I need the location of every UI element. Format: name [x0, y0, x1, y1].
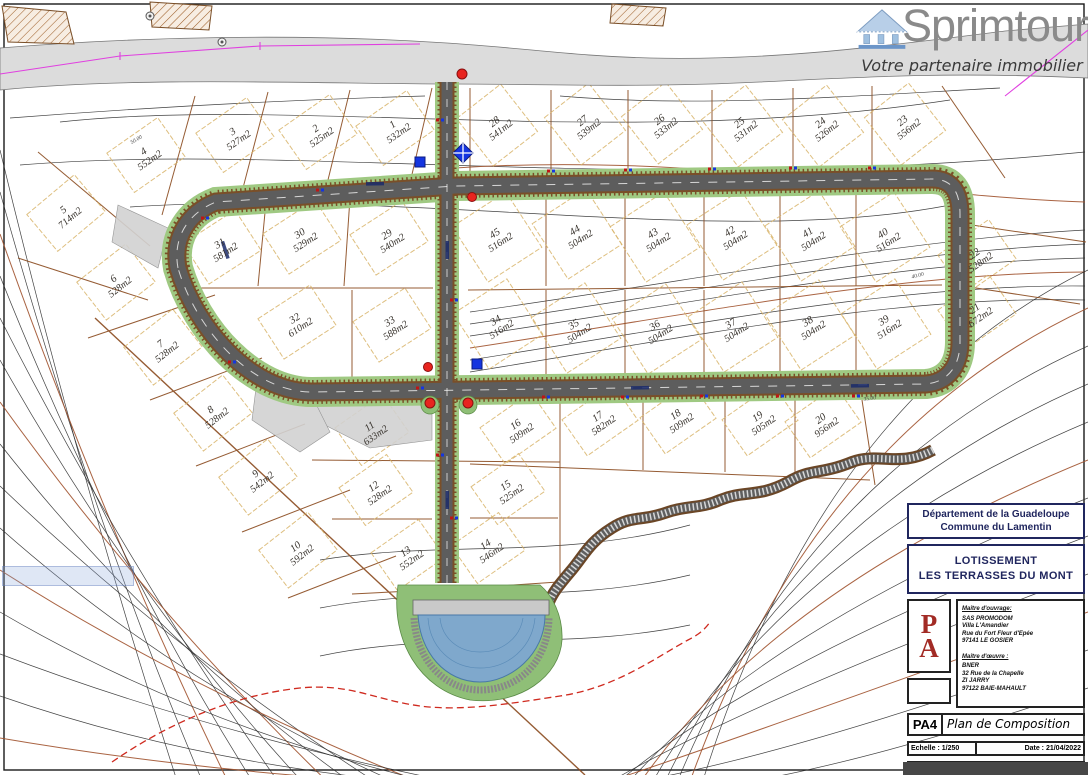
- lot-label: 44504m2: [561, 219, 596, 252]
- street-name-strip: [366, 182, 384, 186]
- empty-stamp-box: [907, 678, 951, 704]
- sprimtour-logo: Sprimtour Votre partenaire immobilier: [856, 0, 1088, 78]
- lot-label: 18509m2: [662, 403, 697, 436]
- contour-line: [320, 525, 690, 560]
- contour-line: [560, 88, 1000, 101]
- designer-address: BNER32 Rue de la ChapelleZI JARRY97122 B…: [962, 663, 1079, 693]
- contour-line: [0, 486, 388, 775]
- lot-label: 3527m2: [219, 120, 254, 153]
- elevation-label: 35.00: [862, 395, 876, 403]
- lot-label: 41504m2: [794, 221, 829, 254]
- lot-label: 6528m2: [100, 267, 135, 301]
- lot-label: 12528m2: [360, 475, 395, 508]
- hydrant-icon: [457, 69, 467, 79]
- owner-label: Maître d'ouvrage:: [962, 606, 1079, 614]
- date-label: Date : 21/04/2022: [977, 743, 1083, 754]
- house-icon: [856, 0, 908, 60]
- address-line: SAS PROMODOM: [962, 616, 1079, 624]
- transformer-icon: [415, 157, 425, 167]
- lot-label: 14546m2: [472, 533, 507, 566]
- lot-label: 23556m2: [889, 109, 924, 143]
- project-box: LOTISSEMENT LES TERRASSES DU MONT: [907, 544, 1085, 594]
- address-line: Rue du Fort Fleur d'Epée: [962, 631, 1079, 639]
- lot-label: 33588m2: [376, 310, 411, 343]
- lot-label: 45516m2: [481, 222, 516, 255]
- contour-line: [0, 570, 440, 775]
- lot-label: 26533m2: [646, 108, 681, 142]
- lot-label: 31581m2: [206, 232, 241, 265]
- architect-monogram: P A: [907, 599, 951, 673]
- lot-label: 2525m2: [302, 117, 337, 150]
- lot-label: 16509m2: [502, 413, 537, 446]
- lot-envelopes: [27, 82, 1016, 590]
- project-line1: LOTISSEMENT: [910, 555, 1082, 567]
- street-name-strip: [851, 384, 869, 388]
- lot-label: 10592m2: [282, 535, 317, 569]
- elevation-label: 40.00: [911, 271, 925, 281]
- region-line1: Département de la Guadeloupe: [910, 508, 1082, 521]
- owner-address: SAS PROMODOMVilla L'AmandierRue du Fort …: [962, 616, 1079, 646]
- street-name-strip: [631, 386, 649, 390]
- lot-label: 13552m2: [392, 540, 427, 573]
- hydrant-icon: [468, 193, 477, 202]
- street-name-strip: [446, 241, 450, 259]
- lot-label: 38504m2: [794, 310, 829, 343]
- map-attribution-overlay: [2, 566, 134, 586]
- scale-label: Echelle : 1/250: [909, 743, 977, 754]
- drainage-channel: [549, 450, 933, 602]
- lot-label: 40516m2: [869, 222, 904, 255]
- lot-label: 39516m2: [870, 309, 905, 342]
- address-line: 97122 BAIE-MAHAULT: [962, 686, 1079, 694]
- lot-label: 32610m2: [281, 307, 316, 340]
- title-block: Département de la Guadeloupe Commune du …: [905, 503, 1087, 775]
- lot-label: 20956m2: [807, 407, 842, 440]
- lot-label: 8528m2: [197, 398, 232, 432]
- region-box: Département de la Guadeloupe Commune du …: [907, 503, 1085, 539]
- lot-label: 4552m2: [130, 140, 165, 173]
- lot-label: 25531m2: [726, 111, 761, 145]
- lot-label: 19505m2: [744, 405, 779, 438]
- transformer-icon: [472, 359, 482, 369]
- brand-tagline: Votre partenaire immobilier: [856, 56, 1088, 75]
- address-line: 32 Rue de la Chapelle: [962, 671, 1079, 679]
- sheet-code: PA4: [907, 713, 943, 736]
- address-line: BNER: [962, 663, 1079, 671]
- sheet-title: Plan de Composition: [943, 713, 1085, 736]
- lot-label: 42504m2: [716, 220, 751, 253]
- frame-bottom-bar: [903, 762, 1088, 775]
- lot-label: 37504m2: [717, 312, 752, 345]
- contour-line: [0, 318, 284, 775]
- lot-label: 7528m2: [147, 332, 182, 366]
- lot-label: 15525m2: [492, 474, 527, 507]
- lot-label: 43504m2: [639, 222, 674, 255]
- lot-label: 36504m2: [641, 314, 676, 347]
- site-plan-sheet: 1532m22525m23527m24552m25714m26528m27528…: [0, 0, 1088, 775]
- lot-label: 5714m2: [50, 197, 85, 231]
- retention-pond: [397, 585, 562, 701]
- brand-name: Sprimtour: [902, 0, 1088, 52]
- contour-line: [0, 444, 362, 775]
- lot-label: 34516m2: [482, 309, 517, 342]
- address-line: 97141 LE GOSIER: [962, 638, 1079, 646]
- lot-label: 28541m2: [481, 110, 516, 144]
- pond-walkway: [413, 600, 549, 615]
- project-line2: LES TERRASSES DU MONT: [910, 570, 1082, 582]
- street-name-strip: [446, 491, 450, 509]
- lot-label: 27539m2: [569, 109, 604, 143]
- region-line2: Commune du Lamentin: [910, 521, 1082, 534]
- contour-line: [0, 654, 492, 775]
- parties-box: Maître d'ouvrage: SAS PROMODOMVilla L'Am…: [956, 599, 1085, 708]
- designer-label: Maître d'œuvre :: [962, 654, 1079, 662]
- lot-label: 17582m2: [584, 405, 619, 438]
- address-line: ZI JARRY: [962, 678, 1079, 686]
- lot-label: 9542m2: [242, 462, 277, 496]
- hydrant-icon: [463, 398, 473, 408]
- hydrant-icon: [424, 363, 433, 372]
- hydrant-icon: [425, 398, 435, 408]
- contour-line: [0, 402, 336, 775]
- lot-label: 30529m2: [286, 222, 321, 255]
- address-line: Villa L'Amandier: [962, 623, 1079, 631]
- lot-label: 29540m2: [373, 223, 408, 256]
